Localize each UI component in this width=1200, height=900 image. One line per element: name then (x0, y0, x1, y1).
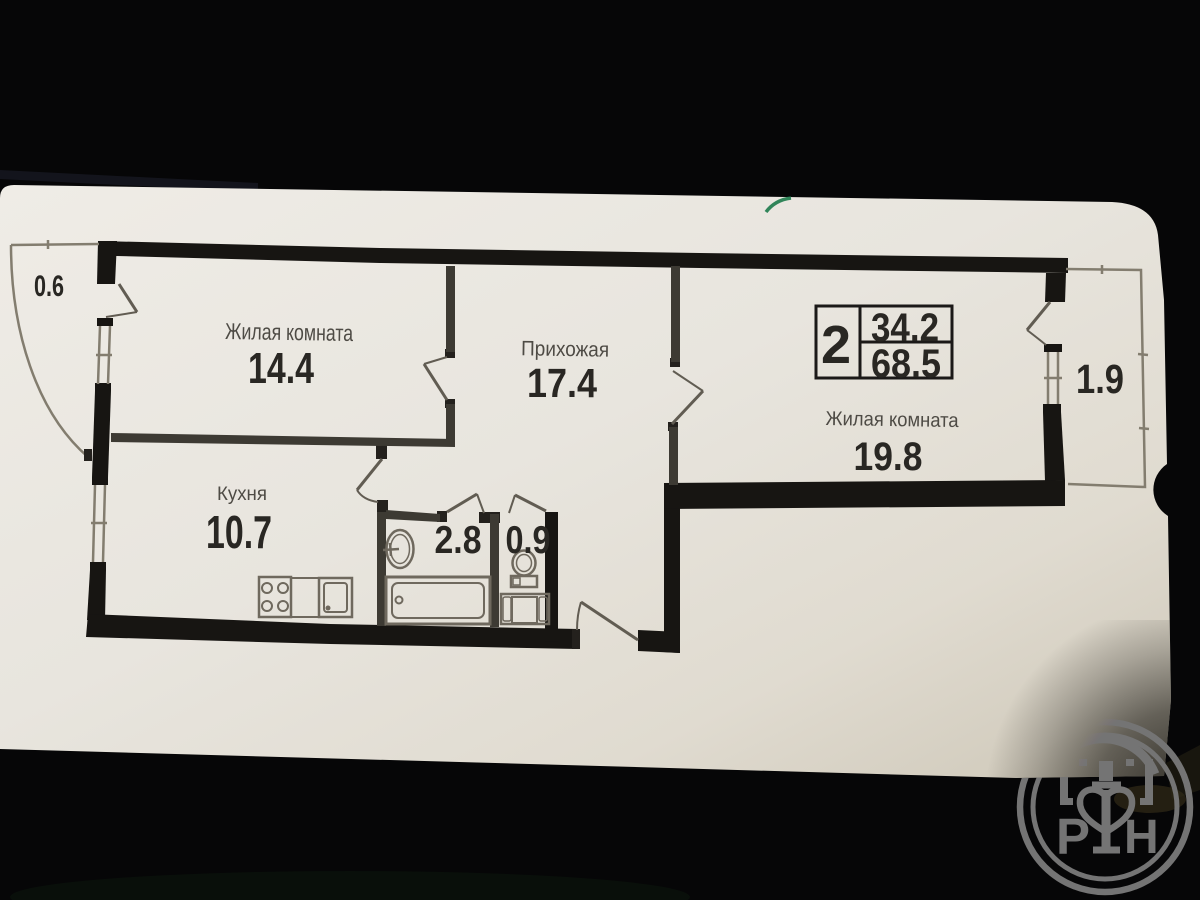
svg-text:17.4: 17.4 (527, 360, 597, 406)
svg-text:Жилая комната: Жилая комната (225, 318, 354, 346)
svg-text:2: 2 (821, 315, 851, 375)
svg-text:14.4: 14.4 (248, 344, 314, 393)
svg-text:1.9: 1.9 (1076, 356, 1124, 402)
svg-text:0.9: 0.9 (506, 519, 551, 562)
svg-text:Прихожая: Прихожая (521, 337, 609, 361)
svg-text:Кухня: Кухня (217, 484, 267, 505)
svg-text:19.8: 19.8 (854, 435, 923, 479)
svg-text:68.5: 68.5 (871, 342, 941, 386)
svg-text:2.8: 2.8 (435, 519, 482, 562)
svg-text:Жилая комната: Жилая комната (825, 408, 959, 432)
svg-text:0.6: 0.6 (34, 270, 64, 303)
svg-text:10.7: 10.7 (206, 506, 272, 558)
